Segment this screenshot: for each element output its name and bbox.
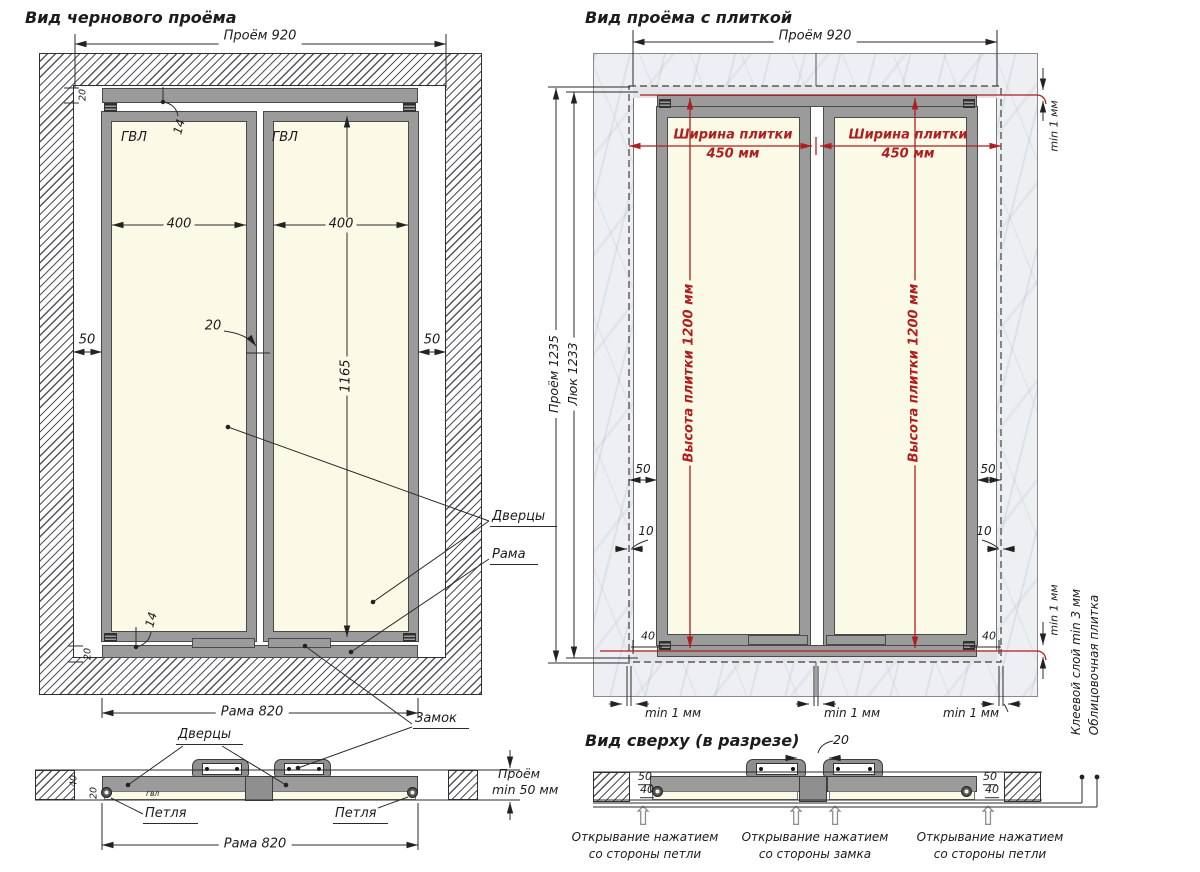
lock-callout-text: Замок (413, 711, 469, 729)
hinge-callout-text: Петля (143, 806, 198, 824)
tile-width-value: 450 мм (707, 148, 760, 163)
frame-callout: Рама (490, 548, 538, 563)
hinge-callout: Петля (333, 807, 388, 822)
dim-door-width: 400 (164, 218, 195, 233)
dim-bottom-gap: 40 (982, 631, 996, 644)
hinge-callout-text: Петля (333, 806, 388, 824)
open-caption-line1: Открывание нажатием (917, 831, 1064, 845)
open-caption-line2: со стороны замка (759, 848, 871, 862)
dim-panel-thickness: 20 (90, 787, 101, 799)
glue-layer-callout: Клеевой слой min 3 мм (1070, 589, 1084, 735)
dim-door-height: 1165 (340, 356, 355, 395)
dim-side-gap: 50 (635, 463, 650, 477)
gvl-small-label: гвл (146, 790, 159, 799)
dim-frame-profile: 20 (79, 89, 90, 101)
material-label: ГВЛ (121, 131, 147, 146)
dim-hatch-height: Люк 1233 (566, 337, 580, 410)
dim-side-gap: 50 (980, 463, 995, 477)
min-gap-label: min 1 мм (824, 707, 880, 721)
dim-frame-profile: 20 (84, 648, 95, 660)
tile-width-value: 450 мм (882, 148, 935, 163)
dim-opening-width: Проём 920 (774, 30, 857, 45)
open-caption-line2: со стороны петли (934, 848, 1046, 862)
doors-callout-text: Дверцы (490, 509, 557, 527)
tile-height-label: Высота плитки 1200 мм (683, 281, 698, 466)
right-section-title: Вид сверху (в разрезе) (585, 731, 799, 750)
open-caption-line2: со стороны петли (589, 848, 701, 862)
dim-door-width: 400 (326, 218, 357, 233)
left-view-title: Вид чернового проёма (25, 8, 237, 27)
open-caption-line1: Открывание нажатием (572, 831, 719, 845)
dim-opening-depth-line1: Проём (498, 767, 540, 781)
lock-callout: Замок (413, 712, 469, 727)
dim-frame-width: Рама 820 (216, 706, 289, 721)
dim-frame-width-bottom: Рама 820 (219, 838, 292, 853)
dim-center-gap: 20 (205, 320, 222, 335)
dim-center-gap: 20 (833, 733, 849, 747)
dim-opening-height: Проём 1235 (547, 330, 561, 418)
right-view-title: Вид проёма с плиткой (585, 8, 792, 27)
open-caption-line1: Открывание нажатием (742, 831, 889, 845)
dim-tile-overlap: 10 (638, 525, 653, 539)
doors-callout: Дверцы (490, 510, 557, 525)
dim-side-gap: 50 (79, 334, 96, 349)
dim-opening-width: Проём 920 (219, 30, 302, 45)
frame-callout-text: Рама (490, 547, 538, 565)
material-label: ГВЛ (272, 131, 298, 146)
min-gap-label: min 1 мм (645, 707, 701, 721)
section-doors-text: Дверцы (176, 727, 243, 745)
min-gap-label: min 1 мм (1049, 584, 1062, 635)
hinge-callout: Петля (143, 807, 198, 822)
dim-side-gap: 50 (424, 334, 441, 349)
min-gap-label: min 1 мм (1049, 100, 1062, 151)
tile-width-label: Ширина плитки (849, 129, 968, 144)
dim-door-thickness: 40 (70, 775, 81, 787)
dim-door-depth: 40 (640, 784, 654, 798)
drawing-canvas: ⇧ ⇧ ⇧ ⇧ (0, 0, 1200, 872)
facing-tile-callout: Облицовочная плитка (1088, 595, 1102, 735)
dim-door-depth: 40 (985, 784, 999, 798)
tile-width-label: Ширина плитки (674, 129, 793, 144)
section-doors-callout: Дверцы (176, 728, 243, 743)
tile-height-label: Высота плитки 1200 мм (908, 281, 923, 466)
dim-tile-overlap: 10 (976, 525, 991, 539)
dim-opening-depth-line2: min 50 мм (492, 783, 558, 797)
min-gap-label: min 1 мм (943, 707, 999, 721)
dim-bottom-gap: 40 (641, 631, 655, 644)
